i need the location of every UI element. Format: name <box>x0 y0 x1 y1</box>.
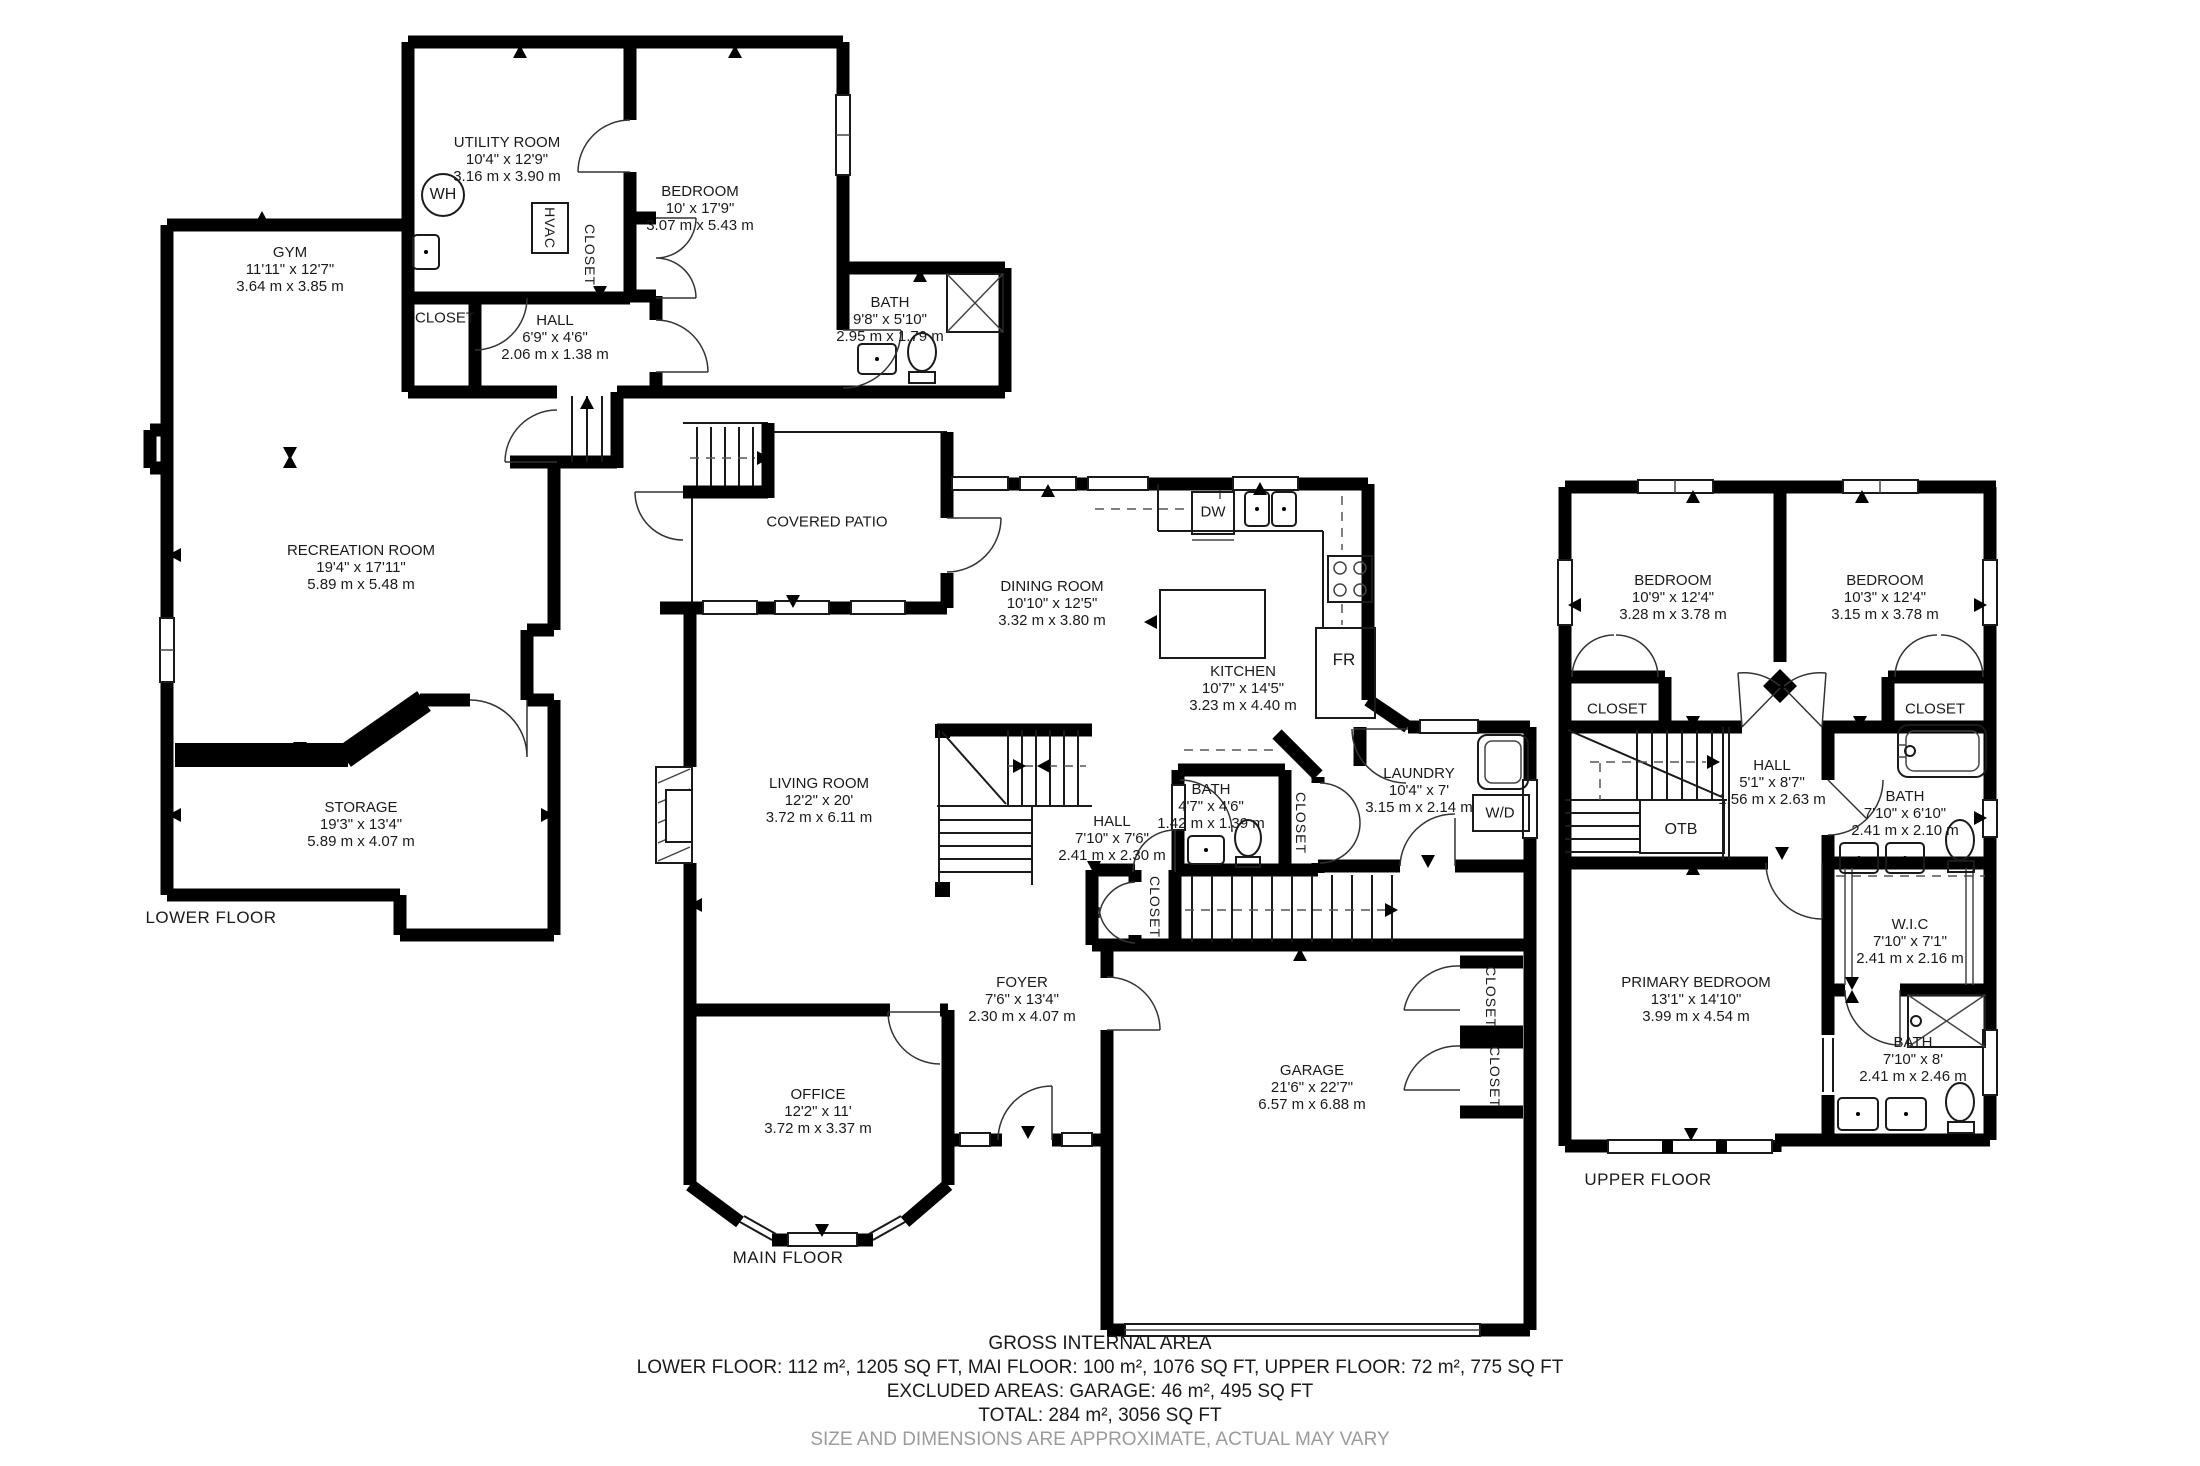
room-dim-ft: 12'2" x 11' <box>764 1103 872 1120</box>
room-dim-ft: 6'9" x 4'6" <box>501 329 609 346</box>
room-name: HALL <box>501 312 609 329</box>
closet-label: CLOSET <box>1293 792 1309 854</box>
room-dim-m: 6.57 m x 6.88 m <box>1258 1096 1366 1113</box>
room-name: LIVING ROOM <box>766 775 872 792</box>
room-name: OFFICE <box>764 1086 872 1103</box>
room-label-garage: GARAGE 21'6" x 22'7" 6.57 m x 6.88 m <box>1258 1062 1366 1113</box>
room-label-bath-upper-bottom: BATH 7'10" x 8' 2.41 m x 2.46 m <box>1859 1034 1967 1085</box>
room-label-storage: STORAGE 19'3" x 13'4" 5.89 m x 4.07 m <box>307 799 415 850</box>
room-label-recreation: RECREATION ROOM 19'4" x 17'11" 5.89 m x … <box>287 542 435 593</box>
room-dim-m: 3.23 m x 4.40 m <box>1189 697 1297 714</box>
upper-floor-caption: UPPER FLOOR <box>1584 1170 1711 1190</box>
room-dim-m: 3.28 m x 3.78 m <box>1619 606 1727 623</box>
closet-label: CLOSET <box>1487 1046 1503 1108</box>
room-label-hall-lower: HALL 6'9" x 4'6" 2.06 m x 1.38 m <box>501 312 609 363</box>
room-name: GYM <box>236 244 344 261</box>
room-dim-m: 2.41 m x 2.46 m <box>1859 1068 1967 1085</box>
room-dim-m: 3.32 m x 3.80 m <box>998 612 1106 629</box>
room-name: BATH <box>836 294 944 311</box>
lower-floor-caption: LOWER FLOOR <box>145 908 276 928</box>
room-dim-ft: 7'10" x 8' <box>1859 1051 1967 1068</box>
room-label-bedroom-lower: BEDROOM 10' x 17'9" 3.07 m x 5.43 m <box>646 183 754 234</box>
room-dim-ft: 9'8" x 5'10" <box>836 311 944 328</box>
room-dim-m: 3.72 m x 3.37 m <box>764 1120 872 1137</box>
room-label-wic: W.I.C 7'10" x 7'1" 2.41 m x 2.16 m <box>1856 916 1964 967</box>
room-name: FOYER <box>968 974 1076 991</box>
room-dim-m: 1.42 m x 1.39 m <box>1157 815 1265 832</box>
room-dim-m: 3.15 m x 2.14 m <box>1365 799 1473 816</box>
room-dim-m: 2.41 m x 2.30 m <box>1058 847 1166 864</box>
room-label-bath-main: BATH 4'7" x 4'6" 1.42 m x 1.39 m <box>1157 781 1265 832</box>
room-dim-m: 2.06 m x 1.38 m <box>501 346 609 363</box>
room-name: HALL <box>1058 813 1166 830</box>
room-name: KITCHEN <box>1189 663 1297 680</box>
room-name: HALL <box>1718 757 1826 774</box>
closet-label: CLOSET <box>1905 701 1965 718</box>
room-name: GARAGE <box>1258 1062 1366 1079</box>
closet-label: CLOSET <box>1147 876 1163 938</box>
room-dim-m: 2.95 m x 1.79 m <box>836 328 944 345</box>
room-label-bath-lower: BATH 9'8" x 5'10" 2.95 m x 1.79 m <box>836 294 944 345</box>
floor-areas-line: LOWER FLOOR: 112 m², 1205 SQ FT, MAI FLO… <box>0 1356 2200 1380</box>
room-dim-ft: 10'7" x 14'5" <box>1189 680 1297 697</box>
main-floor-caption: MAIN FLOOR <box>733 1248 844 1268</box>
closet-label: CLOSET <box>582 224 598 286</box>
room-dim-m: 5.89 m x 5.48 m <box>287 576 435 593</box>
room-dim-ft: 10' x 17'9" <box>646 200 754 217</box>
room-dim-m: 3.16 m x 3.90 m <box>453 168 561 185</box>
disclaimer-line: SIZE AND DIMENSIONS ARE APPROXIMATE, ACT… <box>0 1428 2200 1452</box>
room-dim-ft: 13'1" x 14'10" <box>1621 991 1770 1008</box>
total-area-line: TOTAL: 284 m², 3056 SQ FT <box>0 1404 2200 1428</box>
room-dim-m: 3.72 m x 6.11 m <box>766 809 872 826</box>
room-label-gym: GYM 11'11" x 12'7" 3.64 m x 3.85 m <box>236 244 344 295</box>
room-dim-ft: 7'6" x 13'4" <box>968 991 1076 1008</box>
room-name: BATH <box>1851 788 1959 805</box>
room-dim-m: 2.41 m x 2.10 m <box>1851 822 1959 839</box>
floor-plan-page: UTILITY ROOM 10'4" x 12'9" 3.16 m x 3.90… <box>0 0 2200 1466</box>
room-label-bedroom-right: BEDROOM 10'3" x 12'4" 3.15 m x 3.78 m <box>1831 572 1939 623</box>
room-name: RECREATION ROOM <box>287 542 435 559</box>
room-name: BATH <box>1157 781 1265 798</box>
room-dim-ft: 19'4" x 17'11" <box>287 559 435 576</box>
area-summary: GROSS INTERNAL AREA LOWER FLOOR: 112 m²,… <box>0 1332 2200 1452</box>
open-to-below-label: OTB <box>1665 821 1698 839</box>
room-dim-ft: 5'1" x 8'7" <box>1718 774 1826 791</box>
room-name: BEDROOM <box>1831 572 1939 589</box>
room-dim-m: 2.30 m x 4.07 m <box>968 1008 1076 1025</box>
hvac-label: HVAC <box>542 207 558 249</box>
room-label-primary-bedroom: PRIMARY BEDROOM 13'1" x 14'10" 3.99 m x … <box>1621 974 1770 1025</box>
room-name: PRIMARY BEDROOM <box>1621 974 1770 991</box>
lower-floor-walls <box>150 42 1005 935</box>
floor-plan-drawing <box>0 0 2200 1466</box>
room-name: W.I.C <box>1856 916 1964 933</box>
dishwasher-label: DW <box>1201 504 1226 521</box>
room-label-kitchen: KITCHEN 10'7" x 14'5" 3.23 m x 4.40 m <box>1189 663 1297 714</box>
gross-internal-area-title: GROSS INTERNAL AREA <box>0 1332 2200 1356</box>
room-dim-ft: 11'11" x 12'7" <box>236 261 344 278</box>
room-dim-ft: 7'10" x 6'10" <box>1851 805 1959 822</box>
room-label-utility: UTILITY ROOM 10'4" x 12'9" 3.16 m x 3.90… <box>453 134 561 185</box>
closet-label: CLOSET <box>1587 701 1647 718</box>
room-name: DINING ROOM <box>998 578 1106 595</box>
room-label-office: OFFICE 12'2" x 11' 3.72 m x 3.37 m <box>764 1086 872 1137</box>
room-name: STORAGE <box>307 799 415 816</box>
washer-dryer-label: W/D <box>1485 805 1514 822</box>
closet-label: CLOSET <box>415 310 475 327</box>
room-label-hall-main: HALL 7'10" x 7'6" 2.41 m x 2.30 m <box>1058 813 1166 864</box>
room-label-living: LIVING ROOM 12'2" x 20' 3.72 m x 6.11 m <box>766 775 872 826</box>
room-dim-ft: 12'2" x 20' <box>766 792 872 809</box>
room-dim-ft: 10'9" x 12'4" <box>1619 589 1727 606</box>
room-dim-m: 3.15 m x 3.78 m <box>1831 606 1939 623</box>
room-dim-ft: 21'6" x 22'7" <box>1258 1079 1366 1096</box>
room-dim-m: 1.56 m x 2.63 m <box>1718 791 1826 808</box>
room-label-laundry: LAUNDRY 10'4" x 7' 3.15 m x 2.14 m <box>1365 765 1473 816</box>
room-label-dining: DINING ROOM 10'10" x 12'5" 3.32 m x 3.80… <box>998 578 1106 629</box>
main-floor-walls <box>635 423 1537 1336</box>
room-dim-ft: 10'4" x 12'9" <box>453 151 561 168</box>
room-name: UTILITY ROOM <box>453 134 561 151</box>
room-dim-ft: 7'10" x 7'6" <box>1058 830 1166 847</box>
room-dim-ft: 4'7" x 4'6" <box>1157 798 1265 815</box>
room-dim-m: 5.89 m x 4.07 m <box>307 833 415 850</box>
fridge-label: FR <box>1333 650 1356 670</box>
room-dim-m: 3.07 m x 5.43 m <box>646 217 754 234</box>
room-dim-ft: 10'3" x 12'4" <box>1831 589 1939 606</box>
excluded-areas-line: EXCLUDED AREAS: GARAGE: 46 m², 495 SQ FT <box>0 1380 2200 1404</box>
room-dim-m: 3.64 m x 3.85 m <box>236 278 344 295</box>
room-dim-ft: 10'4" x 7' <box>1365 782 1473 799</box>
room-label-patio: COVERED PATIO <box>766 514 887 531</box>
room-name: BATH <box>1859 1034 1967 1051</box>
room-dim-ft: 19'3" x 13'4" <box>307 816 415 833</box>
room-name: LAUNDRY <box>1365 765 1473 782</box>
room-dim-m: 2.41 m x 2.16 m <box>1856 950 1964 967</box>
room-dim-ft: 7'10" x 7'1" <box>1856 933 1964 950</box>
room-label-hall-upper: HALL 5'1" x 8'7" 1.56 m x 2.63 m <box>1718 757 1826 808</box>
water-heater-label: WH <box>430 186 457 204</box>
room-label-bedroom-left: BEDROOM 10'9" x 12'4" 3.28 m x 3.78 m <box>1619 572 1727 623</box>
closet-label: CLOSET <box>1483 966 1499 1028</box>
room-label-bath-upper-top: BATH 7'10" x 6'10" 2.41 m x 2.10 m <box>1851 788 1959 839</box>
room-dim-m: 3.99 m x 4.54 m <box>1621 1008 1770 1025</box>
room-name: BEDROOM <box>1619 572 1727 589</box>
room-name: BEDROOM <box>646 183 754 200</box>
room-label-foyer: FOYER 7'6" x 13'4" 2.30 m x 4.07 m <box>968 974 1076 1025</box>
room-dim-ft: 10'10" x 12'5" <box>998 595 1106 612</box>
